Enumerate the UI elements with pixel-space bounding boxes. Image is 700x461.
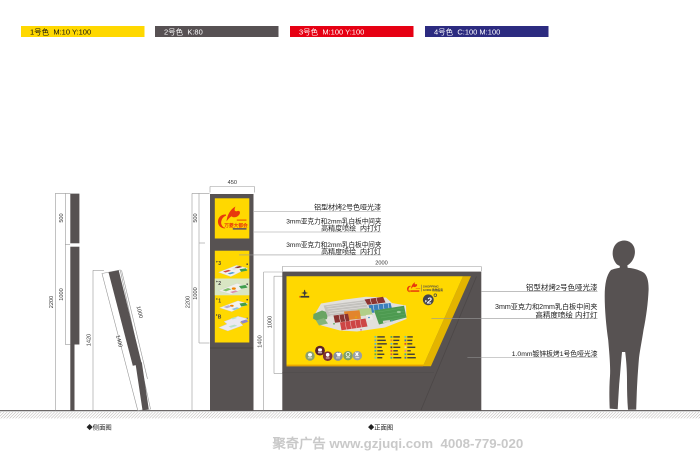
svg-text:1000: 1000 <box>135 305 144 319</box>
svg-text:高精度喷绘 内打灯: 高精度喷绘 内打灯 <box>535 309 598 319</box>
svg-text:2: 2 <box>426 296 432 306</box>
svg-text:3mm亚克力和2mm乳白板中间夹: 3mm亚克力和2mm乳白板中间夹 <box>286 217 382 226</box>
svg-text:3mm亚克力和2mm乳白板中间夹: 3mm亚克力和2mm乳白板中间夹 <box>286 240 382 249</box>
svg-text:铝型材烤2号色哑光漆: 铝型材烤2号色哑光漆 <box>526 282 598 292</box>
svg-text:1420: 1420 <box>87 334 93 346</box>
svg-text:450: 450 <box>228 180 237 186</box>
svg-text:1400: 1400 <box>257 335 263 347</box>
svg-text:2000: 2000 <box>375 261 387 267</box>
svg-text:1号色 M:10 Y:100: 1号色 M:10 Y:100 <box>30 26 91 36</box>
svg-text:高精度喷绘 内打灯: 高精度喷绘 内打灯 <box>321 224 381 233</box>
svg-text:1000: 1000 <box>59 288 65 300</box>
svg-text:2号色 K:80: 2号色 K:80 <box>164 26 203 36</box>
svg-text:3: 3 <box>218 261 221 267</box>
svg-text:GUIDE 购物指南: GUIDE 购物指南 <box>423 288 443 292</box>
svg-text:1000: 1000 <box>193 287 199 299</box>
svg-text:高精度喷绘 内打灯: 高精度喷绘 内打灯 <box>321 247 381 256</box>
svg-text:万菱大都会: 万菱大都会 <box>223 222 248 229</box>
svg-text:◆正面图: ◆正面图 <box>368 424 393 432</box>
svg-text:◆侧面图: ◆侧面图 <box>87 423 112 432</box>
svg-text:B: B <box>218 315 222 321</box>
svg-text:2: 2 <box>218 281 221 287</box>
svg-text:2200: 2200 <box>186 296 192 308</box>
svg-text:1: 1 <box>218 299 221 305</box>
svg-text:聚奇广告 www.gzjuqi.com 4008-779-: 聚奇广告 www.gzjuqi.com 4008-779-020 <box>272 435 524 451</box>
svg-text:500: 500 <box>193 213 199 222</box>
svg-text:3号色 M:100 Y:100: 3号色 M:100 Y:100 <box>299 26 364 36</box>
svg-text:1000: 1000 <box>268 316 274 328</box>
svg-text:500: 500 <box>59 213 65 222</box>
svg-text:铝型材烤2号色哑光漆: 铝型材烤2号色哑光漆 <box>314 202 381 211</box>
svg-text:2200: 2200 <box>49 296 55 308</box>
svg-text:4号色 C:100 M:100: 4号色 C:100 M:100 <box>434 26 500 36</box>
svg-text:SHOPPING: SHOPPING <box>423 284 440 288</box>
svg-text:1.0mm镀锌板烤1号色哑光漆: 1.0mm镀锌板烤1号色哑光漆 <box>512 349 598 358</box>
